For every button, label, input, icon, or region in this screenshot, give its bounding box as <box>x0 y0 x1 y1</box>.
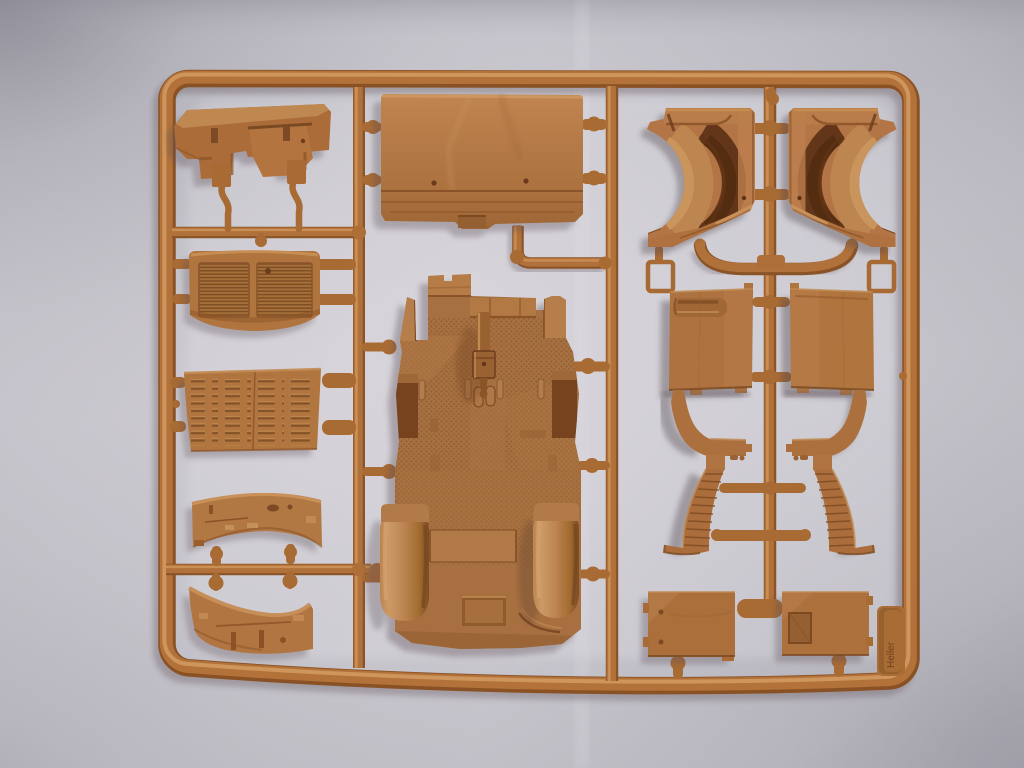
svg-text:Heller: Heller <box>886 641 897 668</box>
